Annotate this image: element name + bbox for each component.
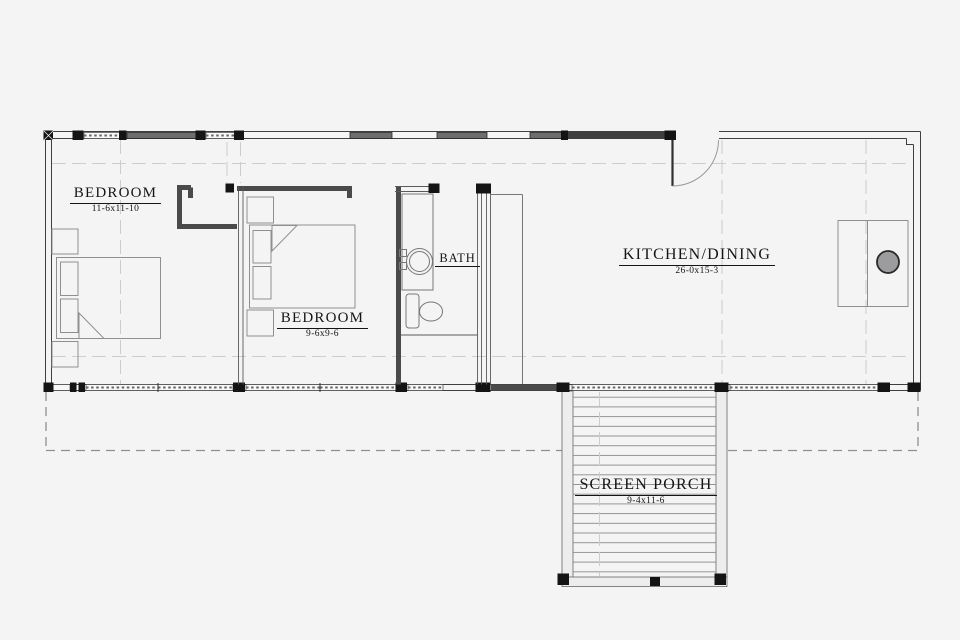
kitchen-wall-counter	[491, 195, 523, 385]
room-label-screen-porch: SCREEN PORCH 9-4x11-6	[561, 477, 731, 507]
room-label-bath: BATH	[426, 250, 489, 268]
room-name: KITCHEN/DINING	[619, 247, 775, 266]
bedroom1-furniture	[52, 229, 161, 367]
interior-walls	[177, 184, 523, 385]
vanity	[402, 194, 433, 290]
solid-wall-segment	[568, 132, 666, 140]
room-label-bedroom-1: BEDROOM 11-6x11-10	[45, 185, 186, 215]
toilet-bowl	[420, 302, 443, 321]
pillow	[61, 262, 79, 296]
porch-post	[715, 574, 727, 586]
room-dimensions: 9-4x11-6	[561, 497, 731, 507]
bed	[57, 258, 161, 339]
porch-post	[650, 577, 660, 586]
pillow	[61, 299, 79, 333]
room-name: BEDROOM	[277, 311, 368, 329]
pillow	[253, 267, 271, 300]
room-dimensions: 9-6x9-6	[252, 330, 393, 340]
blanket-fold	[79, 313, 104, 339]
room-name: BEDROOM	[70, 186, 161, 204]
bedroom2-left-wall	[239, 187, 244, 385]
nightstand	[52, 229, 78, 254]
porch-frame-bottom	[562, 577, 727, 587]
bath-right-wall	[478, 193, 491, 385]
room-dimensions: 11-6x11-10	[45, 205, 186, 215]
plan-drawing	[0, 0, 960, 640]
room-name: SCREEN PORCH	[575, 477, 716, 496]
kitchen-sink	[877, 251, 899, 273]
pillow	[253, 231, 271, 264]
room-label-kitchen-dining: KITCHEN/DINING 26-0x15-3	[612, 247, 782, 277]
deck-outline-dashed	[46, 392, 918, 451]
room-label-bedroom-2: BEDROOM 9-6x9-6	[252, 310, 393, 340]
top-wall-windows	[84, 133, 562, 139]
porch-post	[558, 574, 570, 586]
door-jamb-post	[226, 184, 235, 193]
toilet-tank	[406, 294, 419, 328]
room-name: BATH	[435, 252, 479, 267]
nightstand	[52, 342, 78, 368]
room-dimensions: 26-0x15-3	[612, 267, 782, 277]
blanket-fold	[272, 226, 297, 252]
kitchen-island	[838, 221, 908, 307]
floor-plan: BEDROOM 11-6x11-10 BEDROOM 9-6x9-6 BATH …	[0, 0, 960, 640]
nightstand	[247, 197, 274, 223]
